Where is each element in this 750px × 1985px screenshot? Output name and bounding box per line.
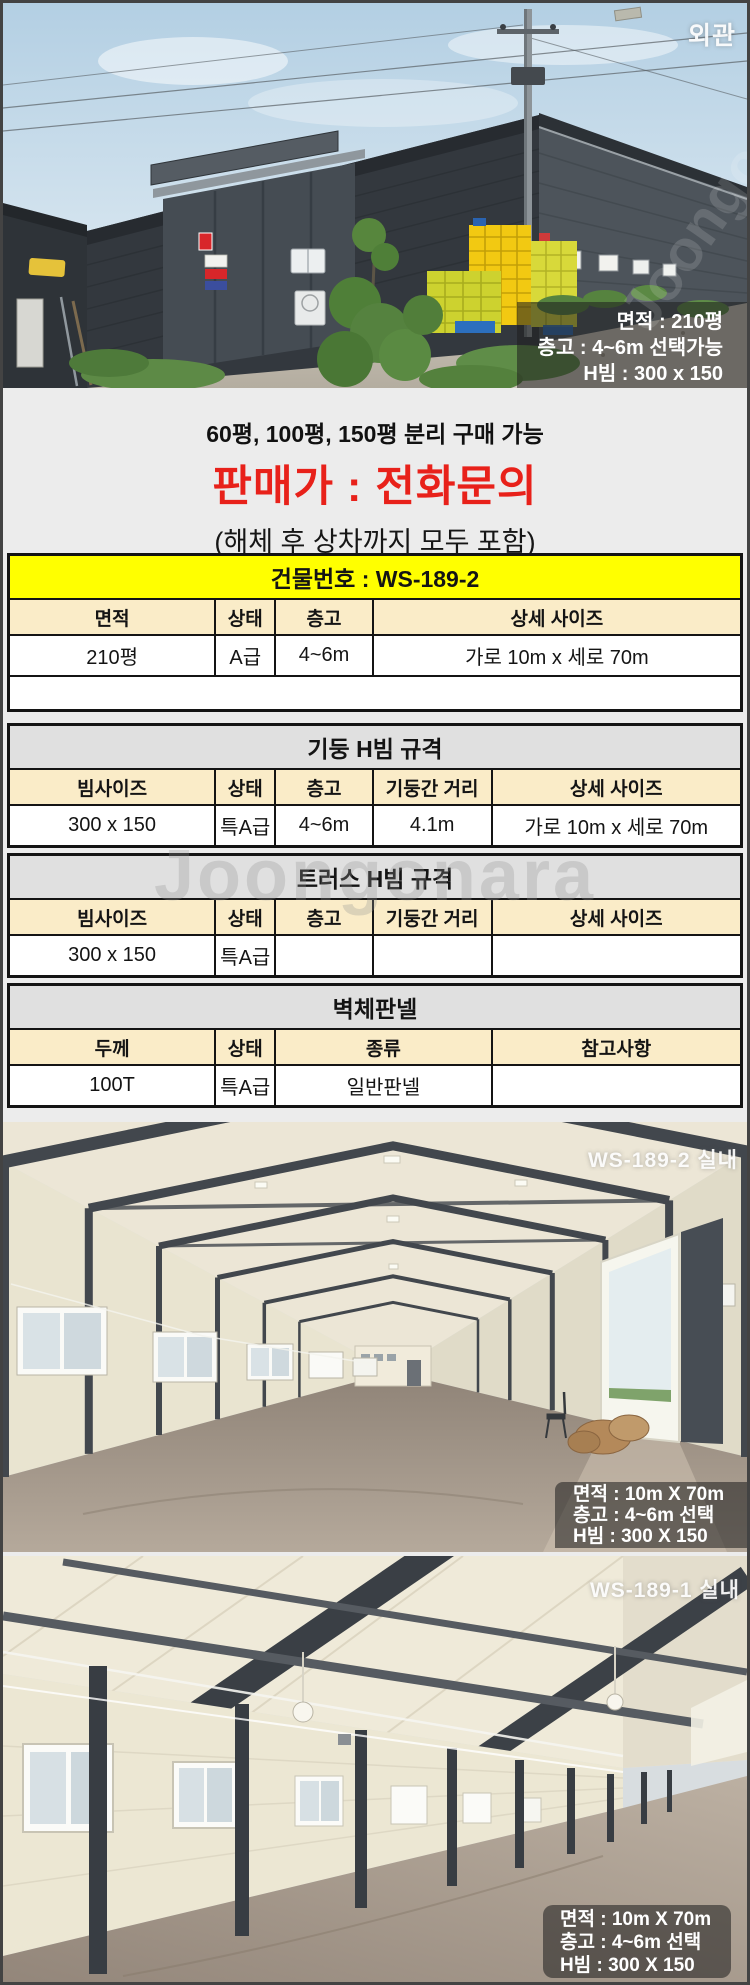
interior1-spec-overlay: 면적 : 10m X 70m 층고 : 4~6m 선택 H빔 : 300 X 1… — [555, 1482, 747, 1548]
purchase-split-note: 60평, 100평, 150평 분리 구매 가능 — [0, 415, 750, 449]
col-header-area: 면적 — [9, 599, 216, 635]
cell-condition: 특A급 — [215, 805, 275, 847]
interior-photo-ws-189-2: WS-189-2 실내 면적 : 10m X 70m 층고 : 4~6m 선택 … — [3, 1122, 747, 1552]
spec-line-hbeam: H빔 : 300 x 150 — [523, 361, 723, 387]
wall-panel-table-title: 벽체판넬 — [9, 985, 742, 1030]
col-header-condition: 상태 — [215, 1029, 275, 1065]
building-table-title: 건물번호 : WS-189-2 — [9, 555, 742, 600]
col-header-size: 상세 사이즈 — [492, 769, 742, 805]
cell-size: 가로 10m x 세로 70m — [492, 805, 742, 847]
warehouse-listing-flyer: 외관 면적 : 210평 층고 : 4~6m 선택가능 H빔 : 300 x 1… — [0, 0, 750, 1985]
cell-span — [373, 935, 492, 977]
building-info-table: 건물번호 : WS-189-2 면적 상태 층고 상세 사이즈 210평 A급 … — [7, 553, 743, 712]
interior-photo-ws-189-1: WS-189-1 실내 면적 : 10m X 70m 층고 : 4~6m 선택 … — [3, 1556, 747, 1982]
photo-tag-interior2: WS-189-1 실내 — [590, 1574, 740, 1604]
junction-box — [338, 1734, 351, 1745]
col-header-type: 종류 — [275, 1029, 491, 1065]
photo-tag-exterior: 외관 — [688, 16, 736, 52]
cell-type: 일반판넬 — [275, 1065, 491, 1107]
col-header-size: 상세 사이즈 — [492, 899, 742, 935]
col-header-beam-size: 빔사이즈 — [9, 899, 216, 935]
interior2-spec-overlay: 면적 : 10m X 70m 층고 : 4~6m 선택 H빔 : 300 X 1… — [543, 1905, 731, 1978]
cell-condition: 특A급 — [215, 1065, 275, 1107]
cell-thickness: 100T — [9, 1065, 216, 1107]
col-header-condition: 상태 — [215, 769, 275, 805]
spec-line-area: 면적 : 10m X 70m — [560, 1908, 731, 1931]
column-beam-table: 기둥 H빔 규격 빔사이즈 상태 층고 기둥간 거리 상세 사이즈 300 x … — [7, 723, 743, 848]
col-header-height: 층고 — [275, 899, 372, 935]
spec-line-hbeam: H빔 : 300 X 150 — [573, 1526, 747, 1547]
cell-height: 4~6m — [275, 805, 372, 847]
cell-beam-size: 300 x 150 — [9, 935, 216, 977]
cell-size: 가로 10m x 세로 70m — [373, 635, 742, 676]
cell-condition: A급 — [215, 635, 275, 676]
spec-line-height: 층고 : 4~6m 선택가능 — [523, 335, 723, 361]
spec-line-height: 층고 : 4~6m 선택 — [560, 1931, 731, 1954]
truss-beam-table: 트러스 H빔 규격 빔사이즈 상태 층고 기둥간 거리 상세 사이즈 300 x… — [7, 853, 743, 978]
empty-row — [9, 676, 742, 711]
cell-beam-size: 300 x 150 — [9, 805, 216, 847]
intro-section: 60평, 100평, 150평 분리 구매 가능 판매가 : 전화문의 (해체 … — [0, 388, 750, 553]
col-header-span: 기둥간 거리 — [373, 769, 492, 805]
spec-line-area: 면적 : 10m X 70m — [573, 1484, 747, 1505]
cell-span: 4.1m — [373, 805, 492, 847]
col-header-height: 층고 — [275, 769, 372, 805]
spec-line-height: 층고 : 4~6m 선택 — [573, 1505, 747, 1526]
col-header-remarks: 참고사항 — [492, 1029, 742, 1065]
col-header-height: 층고 — [275, 599, 372, 635]
spec-line-hbeam: H빔 : 300 X 150 — [560, 1954, 731, 1977]
price-line: 판매가 : 전화문의 — [0, 452, 750, 514]
col-header-thickness: 두께 — [9, 1029, 216, 1065]
cell-remarks — [492, 1065, 742, 1107]
column-beam-table-title: 기둥 H빔 규격 — [9, 725, 742, 770]
exterior-spec-overlay: 면적 : 210평 층고 : 4~6m 선택가능 H빔 : 300 x 150 — [517, 302, 747, 388]
col-header-beam-size: 빔사이즈 — [9, 769, 216, 805]
truss-beam-table-title: 트러스 H빔 규격 — [9, 855, 742, 900]
cell-height — [275, 935, 372, 977]
spec-line-area: 면적 : 210평 — [523, 309, 723, 335]
cell-condition: 특A급 — [215, 935, 275, 977]
col-header-condition: 상태 — [215, 599, 275, 635]
col-header-condition: 상태 — [215, 899, 275, 935]
col-header-span: 기둥간 거리 — [373, 899, 492, 935]
cell-size — [492, 935, 742, 977]
wall-panel-table: 벽체판넬 두께 상태 종류 참고사항 100T 특A급 일반판넬 — [7, 983, 743, 1108]
photo-tag-interior1: WS-189-2 실내 — [588, 1144, 738, 1174]
col-header-size: 상세 사이즈 — [373, 599, 742, 635]
cell-height: 4~6m — [275, 635, 372, 676]
exterior-photo: 외관 면적 : 210평 층고 : 4~6m 선택가능 H빔 : 300 x 1… — [3, 3, 747, 388]
cell-area: 210평 — [9, 635, 216, 676]
